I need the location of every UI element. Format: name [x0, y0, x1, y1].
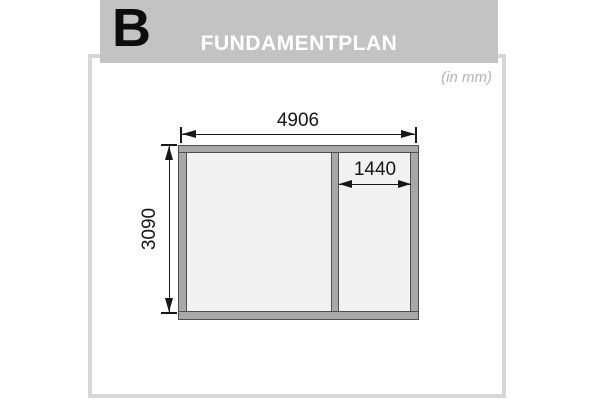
arrowhead-down-icon — [165, 298, 173, 312]
arrowhead-right-icon — [398, 180, 411, 188]
dimension-height-tick-bottom — [161, 312, 177, 314]
dimension-width-line — [181, 134, 416, 135]
arrowhead-right-icon — [401, 130, 415, 138]
dimension-height-label: 3090 — [140, 179, 160, 279]
dimension-section-label: 1440 — [325, 160, 425, 180]
page: B FUNDAMENTPLAN (in mm) 4906 3090 1440 — [0, 0, 600, 400]
header-band: B FUNDAMENTPLAN — [100, 0, 498, 63]
dimension-height-line — [169, 145, 170, 314]
arrowhead-left-icon — [182, 130, 196, 138]
foundation-beam-top — [178, 145, 419, 153]
foundation-beam-left — [178, 152, 187, 312]
foundation-beam-bottom — [178, 311, 419, 320]
dimension-width-label: 4906 — [248, 111, 348, 131]
arrowhead-up-icon — [165, 146, 173, 160]
page-title: FUNDAMENTPLAN — [100, 33, 498, 54]
units-note: (in mm) — [441, 69, 492, 86]
dimension-width-tick-right — [415, 127, 417, 143]
arrowhead-left-icon — [339, 180, 352, 188]
